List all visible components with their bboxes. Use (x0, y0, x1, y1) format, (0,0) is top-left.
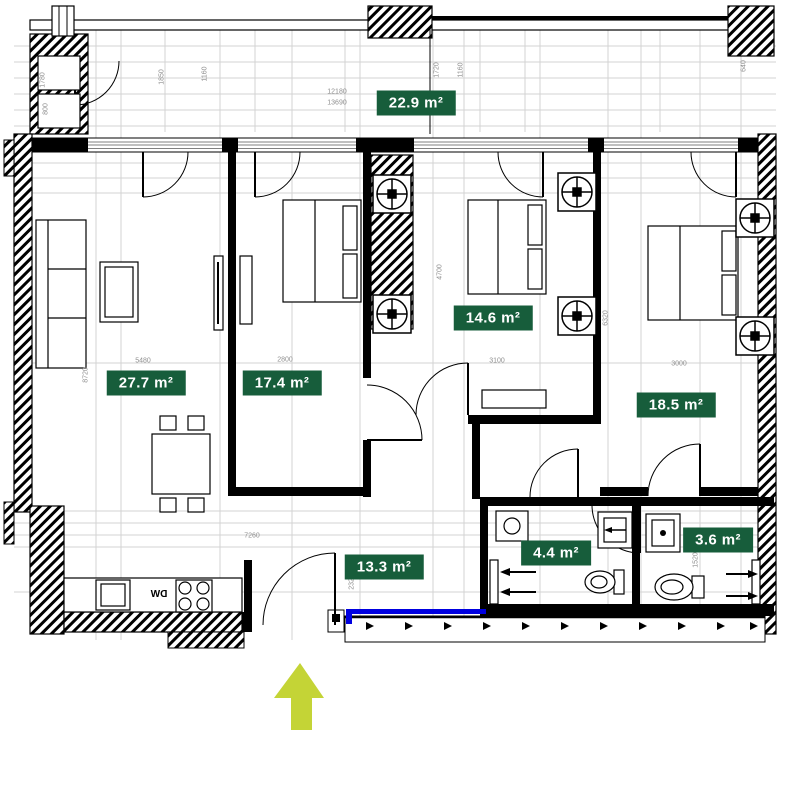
dimension-label: 3100 (489, 358, 505, 365)
dimension-label: 2800 (277, 357, 293, 364)
room-area-badge-balcony: 22.9 m² (377, 91, 456, 116)
entrance-arrow-icon (274, 663, 324, 730)
bed-icon-bedroom2 (468, 200, 546, 408)
dishwasher-label: DW (151, 590, 168, 600)
bed-icon-bedroom1 (240, 200, 361, 324)
bed-icon-bedroom3 (648, 226, 738, 320)
dimension-label: 13690 (327, 100, 346, 107)
room-area-badge-bedroom1: 17.4 m² (243, 371, 322, 396)
tv-icon (214, 256, 223, 330)
room-area-badge-bedroom3: 18.5 m² (637, 393, 716, 418)
dimension-label: 5480 (135, 358, 151, 365)
dimension-label: 1850 (159, 69, 166, 85)
dimension-label: 12180 (327, 89, 346, 96)
coffee-table-icon (100, 262, 138, 322)
toilet-icon-bathroom (585, 570, 624, 594)
room-area-badge-hallway: 13.3 m² (345, 555, 424, 580)
dimension-label: 640 (741, 60, 748, 72)
bathroom-radiator-icon (490, 560, 536, 604)
dimension-label: 8720 (83, 367, 90, 383)
stove-icon (176, 580, 212, 612)
washing-machine-icon (496, 511, 528, 541)
dimension-label: 3000 (671, 361, 687, 368)
wc-sink-icon (646, 514, 680, 552)
sofa-icon (36, 220, 86, 368)
toilet-icon-wc (655, 574, 704, 600)
dimension-label: 1780 (40, 72, 47, 88)
dimension-label: 1720 (434, 62, 441, 78)
kitchen-sink-icon (96, 580, 130, 610)
dining-table-icon (152, 416, 210, 512)
wc-radiator-icon (726, 560, 760, 604)
terrace-band (345, 616, 765, 642)
dimension-label: 4700 (437, 264, 444, 280)
room-area-badge-wc: 3.6 m² (683, 528, 753, 553)
dimension-label: 1160 (202, 66, 209, 81)
bathroom-sink-icon (598, 512, 632, 548)
floor-plan-canvas: 22.9 m² 27.7 m² 17.4 m² 14.6 m² 18.5 m² … (0, 0, 800, 800)
room-area-badge-living: 27.7 m² (107, 371, 186, 396)
window-band (32, 138, 758, 152)
room-area-badge-bathroom: 4.4 m² (521, 541, 591, 566)
room-area-badge-bedroom2: 14.6 m² (454, 306, 533, 331)
dimension-label: 1160 (458, 62, 465, 77)
dimension-label: 1520 (693, 552, 700, 568)
dimension-label: 7260 (244, 533, 260, 540)
dimension-label: 800 (43, 103, 50, 115)
dimension-label: 6320 (603, 310, 610, 326)
